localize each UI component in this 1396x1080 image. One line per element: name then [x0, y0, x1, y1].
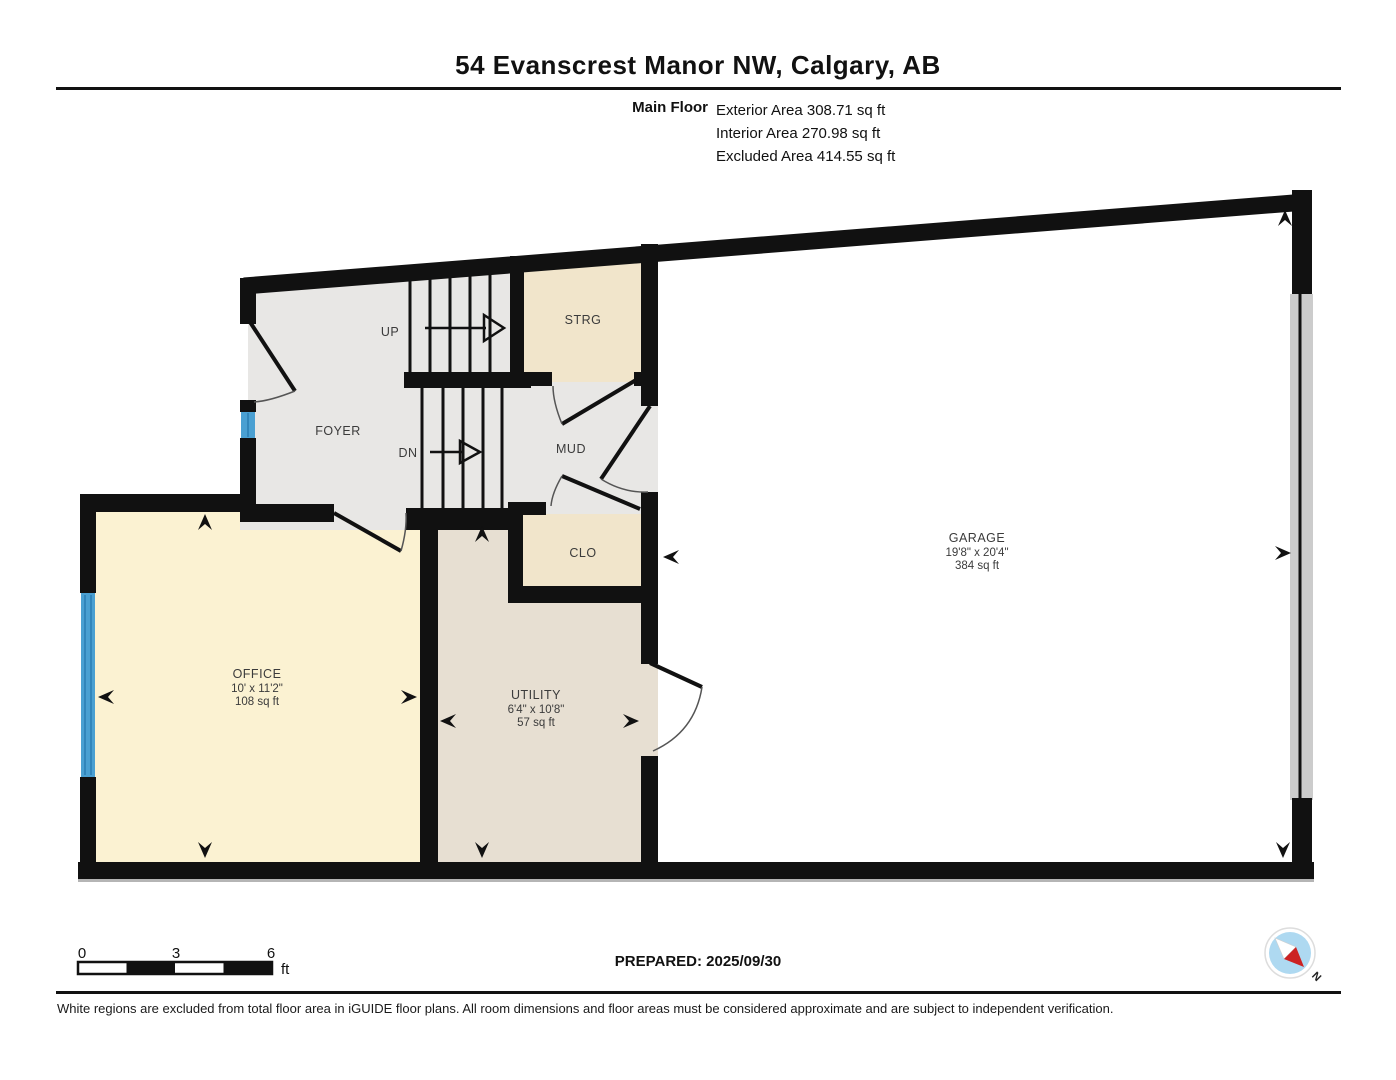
- garage-arrow-down: [1276, 842, 1290, 858]
- label-foyer: FOYER: [315, 424, 361, 438]
- foyer-left-wall-mid: [240, 400, 256, 412]
- garage-arrow-right: [1275, 546, 1291, 560]
- stairs-storage-divider: [510, 256, 524, 384]
- office-label-block: OFFICE 10' x 11'2" 108 sq ft: [231, 667, 283, 708]
- office-left-wall-lower: [80, 777, 96, 872]
- garage-area: 384 sq ft: [955, 560, 1000, 572]
- label-strg: STRG: [565, 313, 602, 327]
- label-utility: UTILITY: [511, 688, 561, 702]
- compass-north-label: N: [1309, 970, 1323, 984]
- prepared-date: PREPARED: 2025/09/30: [0, 953, 1396, 970]
- floorplan-drawing: UP FOYER DN STRG MUD CLO OFFICE 10' x 11…: [0, 0, 1396, 1080]
- storage-mud-wall-left: [512, 372, 552, 386]
- label-up: UP: [381, 325, 399, 339]
- bottom-wall: [78, 862, 1314, 879]
- label-garage: GARAGE: [949, 531, 1006, 545]
- garage-right-wall-bottom: [1292, 798, 1312, 868]
- foyer-left-wall-upper: [240, 278, 256, 324]
- garage-label-block: GARAGE 19'8" x 20'4" 384 sq ft: [945, 531, 1008, 572]
- footer-disclaimer: White regions are excluded from total fl…: [57, 1001, 1357, 1016]
- office-area: 108 sq ft: [235, 696, 280, 708]
- label-dn: DN: [398, 446, 417, 460]
- garage-left-wall-bottom: [641, 756, 658, 866]
- label-mud: MUD: [556, 442, 586, 456]
- bottom-wall-shadow: [78, 879, 1314, 882]
- closet-bottom-wall: [508, 586, 658, 603]
- garage-left-wall-mid: [641, 492, 658, 664]
- stairs-mid-wall: [404, 372, 531, 388]
- office-window: [81, 593, 95, 777]
- foyer-bottom-wall: [240, 504, 334, 522]
- utility-dims: 6'4" x 10'8": [508, 704, 565, 716]
- foyer-left-wall-lower: [240, 438, 256, 515]
- garage-dims: 19'8" x 20'4": [945, 547, 1008, 559]
- top-diagonal-wall: [244, 202, 1306, 286]
- floorplan-page: 54 Evanscrest Manor NW, Calgary, AB Main…: [0, 0, 1396, 1080]
- garage-arrow-left: [663, 550, 679, 564]
- storage-mud-wall-right: [634, 372, 658, 386]
- mud-closet-wall-stub: [508, 502, 546, 515]
- label-office: OFFICE: [233, 667, 282, 681]
- footer-divider: [56, 991, 1341, 994]
- garage-right-wall-top: [1292, 190, 1312, 294]
- office-utility-divider: [420, 508, 438, 864]
- closet-left-wall: [508, 506, 523, 598]
- label-clo: CLO: [569, 546, 596, 560]
- office-dims: 10' x 11'2": [231, 683, 283, 695]
- utility-area: 57 sq ft: [517, 717, 556, 729]
- office-top-wall: [80, 494, 248, 512]
